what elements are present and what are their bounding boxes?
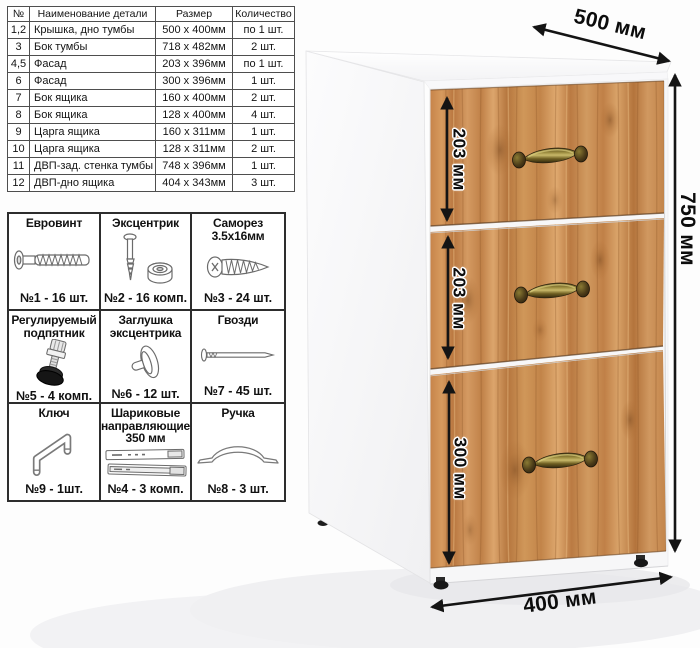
parts-table-cell: 2 шт. xyxy=(233,90,295,107)
hardware-qty: №8 - 3 шт. xyxy=(207,482,268,496)
hardware-item-nails: Гвозди №7 - 45 шт. xyxy=(191,310,285,403)
parts-table-cell: Царга ящика xyxy=(30,141,156,158)
hardware-item-cam-lock: Эксцентрик №2 - 16 комп. xyxy=(100,213,191,310)
dimension-label-drawer3: 300 мм xyxy=(450,427,471,511)
hardware-item-euro-screw: Евровинт №1 - 16 шт. xyxy=(8,213,100,310)
parts-table-cell: 500 х 400мм xyxy=(156,22,233,39)
cam-cover-icon xyxy=(124,339,168,387)
euro-screw-icon xyxy=(13,230,95,292)
hardware-name: Ручка xyxy=(221,407,254,420)
parts-table-cell: Фасад xyxy=(30,56,156,73)
column-header-number: № xyxy=(8,7,30,22)
hardware-item-self-tapping-screw: Саморез 3.5х16мм №3 - 24 шт. xyxy=(191,213,285,310)
parts-table-header-row: № Наименование детали Размер Количество xyxy=(8,7,295,22)
column-header-size: Размер xyxy=(156,7,233,22)
parts-table-cell: 203 х 396мм xyxy=(156,56,233,73)
parts-table-cell: 718 х 482мм xyxy=(156,39,233,56)
hardware-name: Саморез 3.5х16мм xyxy=(193,217,283,242)
side-panel xyxy=(306,51,430,583)
hardware-item-adjustable-foot: Регулируемый подпятник №5 - 4 комп. xyxy=(8,310,100,403)
parts-table-cell: 748 х 396мм xyxy=(156,158,233,175)
hardware-qty: №4 - 3 комп. xyxy=(107,482,183,496)
nail-icon xyxy=(200,327,276,385)
parts-table-row: 1,2Крышка, дно тумбы500 х 400ммпо 1 шт. xyxy=(8,22,295,39)
bow-handle-icon xyxy=(196,420,280,483)
parts-table-cell: 160 х 400мм xyxy=(156,90,233,107)
parts-table-cell: 4,5 xyxy=(8,56,30,73)
parts-table-cell: 10 xyxy=(8,141,30,158)
dimension-label-height: 750 мм xyxy=(675,186,699,272)
parts-table-cell: 4 шт. xyxy=(233,107,295,124)
parts-table-cell: 160 х 311мм xyxy=(156,124,233,141)
parts-table-cell: 11 xyxy=(8,158,30,175)
hardware-grid: Евровинт №1 - 16 шт. Эксцентрик xyxy=(7,212,286,502)
parts-table-cell: 1 шт. xyxy=(233,73,295,90)
parts-table-cell: 2 шт. xyxy=(233,39,295,56)
parts-table-row: 10Царга ящика128 х 311мм2 шт. xyxy=(8,141,295,158)
parts-table-cell: ДВП-дно ящика xyxy=(30,175,156,192)
dimension-label-drawer1: 203 мм xyxy=(449,118,470,202)
parts-table-cell: 7 xyxy=(8,90,30,107)
parts-table-cell: 300 х 396мм xyxy=(156,73,233,90)
hardware-item-key: Ключ №9 - 1шт. xyxy=(8,403,100,501)
parts-table-row: 6Фасад300 х 396мм1 шт. xyxy=(8,73,295,90)
hardware-qty: №5 - 4 комп. xyxy=(16,389,92,403)
parts-table-row: 7Бок ящика160 х 400мм2 шт. xyxy=(8,90,295,107)
assembly-instruction-page: 500 мм 750 мм 400 мм 203 мм 203 мм 300 м… xyxy=(0,0,700,648)
parts-table-cell: Бок тумбы xyxy=(30,39,156,56)
parts-table-cell: 1,2 xyxy=(8,22,30,39)
parts-table-cell: ДВП-зад. стенка тумбы xyxy=(30,158,156,175)
hardware-qty: №9 - 1шт. xyxy=(25,482,83,496)
hardware-name: Эксцентрик xyxy=(112,217,179,230)
parts-table-row: 8Бок ящика128 х 400мм4 шт. xyxy=(8,107,295,124)
hardware-name: Евровинт xyxy=(26,217,82,230)
parts-table-cell: Царга ящика xyxy=(30,124,156,141)
parts-table-cell: 1 шт. xyxy=(233,124,295,141)
hardware-qty: №7 - 45 шт. xyxy=(204,384,272,398)
self-tapping-screw-icon xyxy=(206,242,270,291)
hardware-item-handle: Ручка №8 - 3 шт. xyxy=(191,403,285,501)
parts-table-cell: 3 шт. xyxy=(233,175,295,192)
parts-table-cell: 404 х 343мм xyxy=(156,175,233,192)
parts-table-row: 9Царга ящика160 х 311мм1 шт. xyxy=(8,124,295,141)
parts-table-cell: Крышка, дно тумбы xyxy=(30,22,156,39)
parts-table-cell: 3 xyxy=(8,39,30,56)
parts-table-cell: Бок ящика xyxy=(30,90,156,107)
parts-table: № Наименование детали Размер Количество … xyxy=(7,6,295,192)
hardware-name: Гвозди xyxy=(218,314,259,327)
ball-slides-icon xyxy=(104,445,188,483)
parts-table-cell: по 1 шт. xyxy=(233,56,295,73)
parts-table-cell: 128 х 311мм xyxy=(156,141,233,158)
parts-table-cell: Бок ящика xyxy=(30,107,156,124)
dimension-label-drawer2: 203 мм xyxy=(449,257,470,341)
parts-table-cell: 8 xyxy=(8,107,30,124)
hardware-name: Шариковые направляющие 350 мм xyxy=(101,407,190,445)
parts-table-row: 3Бок тумбы718 х 482мм2 шт. xyxy=(8,39,295,56)
hardware-item-cam-cover: Заглушка эксцентрика №6 - 12 шт. xyxy=(100,310,191,403)
hardware-name: Заглушка эксцентрика xyxy=(102,314,189,339)
adjustable-foot-icon xyxy=(26,339,82,389)
parts-table-cell: по 1 шт. xyxy=(233,22,295,39)
parts-table-cell: 2 шт. xyxy=(233,141,295,158)
column-header-quantity: Количество xyxy=(233,7,295,22)
hardware-item-ball-slides: Шариковые направляющие 350 мм xyxy=(100,403,191,501)
hardware-name: Регулируемый подпятник xyxy=(10,314,98,339)
hardware-qty: №3 - 24 шт. xyxy=(204,291,272,305)
parts-table-cell: 9 xyxy=(8,124,30,141)
parts-table-row: 12ДВП-дно ящика404 х 343мм3 шт. xyxy=(8,175,295,192)
column-header-name: Наименование детали xyxy=(30,7,156,22)
parts-table-row: 11ДВП-зад. стенка тумбы748 х 396мм1 шт. xyxy=(8,158,295,175)
hex-key-icon xyxy=(24,420,84,483)
hardware-qty: №2 - 16 комп. xyxy=(104,291,187,305)
parts-table-cell: 1 шт. xyxy=(233,158,295,175)
parts-table-cell: 6 xyxy=(8,73,30,90)
parts-table-cell: 128 х 400мм xyxy=(156,107,233,124)
parts-table-cell: Фасад xyxy=(30,73,156,90)
hardware-name: Ключ xyxy=(39,407,70,420)
hardware-qty: №1 - 16 шт. xyxy=(20,291,88,305)
parts-table-cell: 12 xyxy=(8,175,30,192)
parts-table-row: 4,5Фасад203 х 396ммпо 1 шт. xyxy=(8,56,295,73)
hardware-qty: №6 - 12 шт. xyxy=(111,387,179,401)
cam-lock-icon xyxy=(114,230,178,292)
